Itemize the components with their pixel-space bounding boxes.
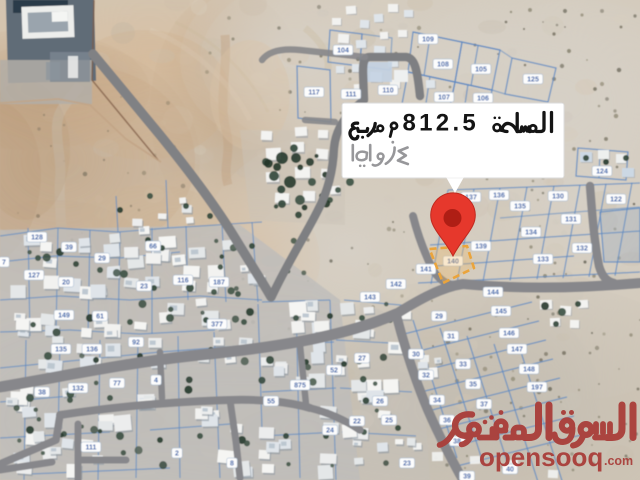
- svg-text:4: 4: [154, 378, 158, 385]
- svg-text:26: 26: [376, 399, 384, 406]
- svg-text:132: 132: [72, 386, 84, 393]
- svg-text:25: 25: [385, 418, 393, 425]
- svg-text:38: 38: [38, 390, 46, 397]
- svg-text:139: 139: [475, 244, 487, 251]
- svg-text:117: 117: [308, 90, 319, 97]
- svg-text:7: 7: [2, 260, 6, 267]
- svg-text:147: 147: [511, 347, 523, 354]
- svg-text:52: 52: [330, 368, 338, 375]
- svg-text:109: 109: [422, 37, 434, 44]
- svg-text:135: 135: [514, 204, 526, 211]
- svg-text:197: 197: [531, 385, 543, 392]
- svg-text:104: 104: [337, 48, 349, 55]
- svg-text:124: 124: [596, 169, 608, 176]
- svg-text:8: 8: [230, 461, 234, 468]
- svg-text:29: 29: [98, 256, 106, 263]
- svg-text:377: 377: [211, 322, 223, 329]
- svg-text:2: 2: [175, 451, 179, 458]
- svg-text:31: 31: [447, 334, 455, 341]
- svg-text:127: 127: [28, 273, 40, 280]
- svg-text:29: 29: [435, 314, 443, 321]
- svg-text:130: 130: [552, 194, 564, 201]
- svg-text:133: 133: [537, 257, 549, 264]
- svg-text:23: 23: [403, 461, 411, 468]
- svg-text:110: 110: [382, 88, 393, 95]
- svg-text:145: 145: [495, 309, 507, 316]
- svg-text:22: 22: [353, 419, 361, 426]
- svg-text:37: 37: [480, 402, 488, 409]
- svg-text:107: 107: [438, 95, 450, 102]
- svg-text:134: 134: [525, 230, 537, 237]
- svg-text:136: 136: [493, 193, 505, 200]
- svg-text:132: 132: [576, 246, 588, 253]
- svg-text:32: 32: [422, 373, 430, 380]
- svg-text:77: 77: [113, 381, 121, 388]
- svg-text:142: 142: [390, 282, 402, 289]
- svg-text:.com: .com: [604, 454, 633, 468]
- svg-text:106: 106: [477, 96, 489, 103]
- svg-text:125: 125: [527, 77, 539, 84]
- svg-text:144: 144: [487, 290, 499, 297]
- svg-text:105: 105: [475, 67, 487, 74]
- svg-text:27: 27: [358, 356, 366, 363]
- svg-text:135: 135: [55, 347, 67, 354]
- svg-text:30: 30: [412, 352, 420, 359]
- svg-text:149: 149: [58, 313, 70, 320]
- svg-text:122: 122: [610, 197, 622, 204]
- svg-text:187: 187: [213, 280, 225, 287]
- svg-text:23: 23: [140, 284, 148, 291]
- svg-text:148: 148: [523, 367, 535, 374]
- svg-text:20: 20: [62, 280, 70, 287]
- svg-text:116: 116: [177, 278, 188, 285]
- svg-text:61: 61: [96, 314, 104, 321]
- svg-text:39: 39: [65, 245, 73, 252]
- svg-text:108: 108: [437, 62, 449, 69]
- svg-text:141: 141: [420, 267, 432, 274]
- svg-text:136: 136: [86, 347, 98, 354]
- svg-text:66: 66: [149, 244, 157, 251]
- svg-text:39: 39: [463, 474, 471, 480]
- svg-text:143: 143: [364, 295, 376, 302]
- svg-text:24: 24: [326, 428, 334, 435]
- svg-text:36: 36: [443, 418, 451, 425]
- svg-text:92: 92: [132, 340, 140, 347]
- svg-text:146: 146: [503, 331, 515, 338]
- svg-text:812.5: 812.5: [403, 110, 480, 137]
- svg-text:33: 33: [459, 362, 467, 369]
- svg-text:111: 111: [86, 445, 97, 452]
- svg-text:111: 111: [346, 92, 357, 99]
- svg-text:opensooq: opensooq: [479, 442, 603, 472]
- svg-text:34: 34: [433, 398, 441, 405]
- svg-text:131: 131: [565, 217, 577, 224]
- svg-text:35: 35: [469, 382, 477, 389]
- svg-text:875: 875: [294, 383, 306, 390]
- svg-text:55: 55: [267, 399, 275, 406]
- svg-text:128: 128: [31, 235, 43, 242]
